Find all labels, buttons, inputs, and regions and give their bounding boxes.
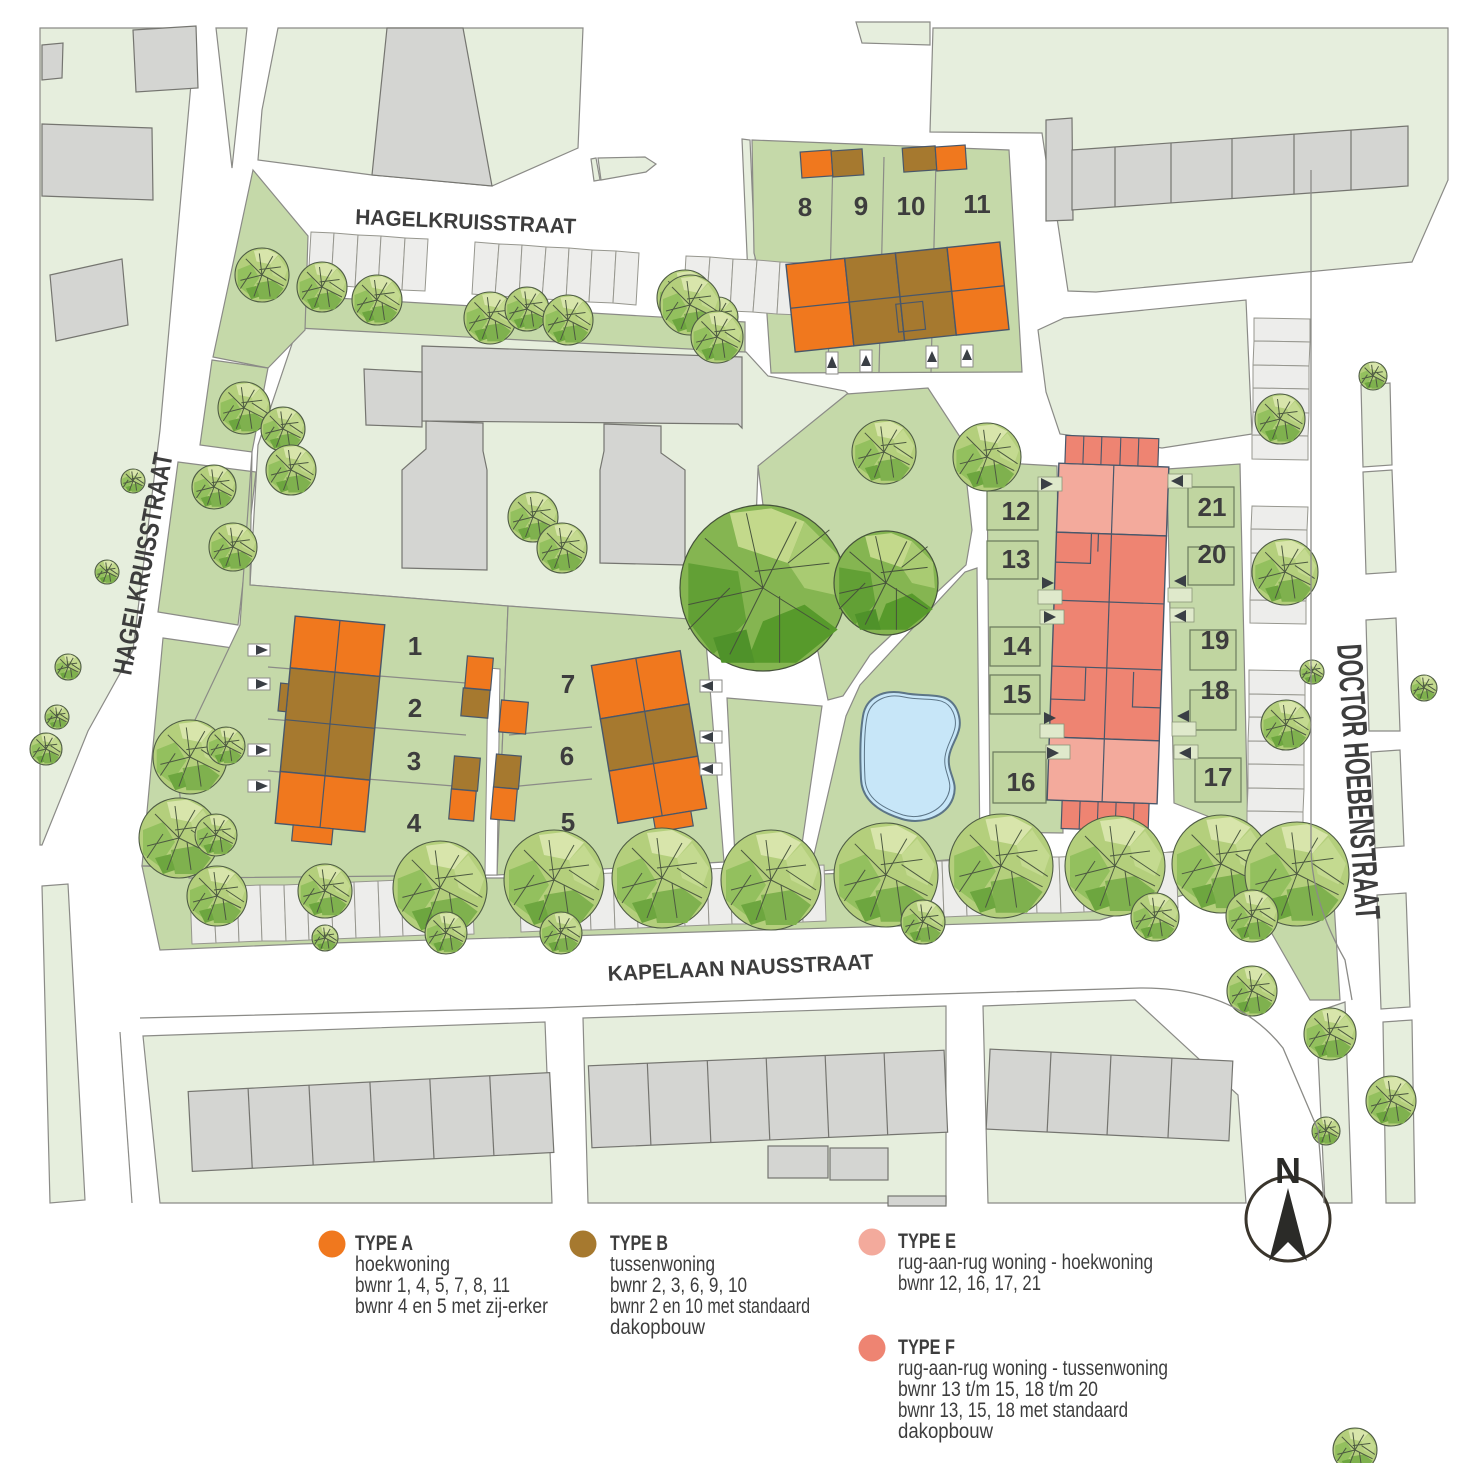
svg-text:4: 4 [407,808,422,838]
svg-text:TYPE E: TYPE E [898,1230,956,1253]
svg-text:5: 5 [561,807,575,837]
svg-text:21: 21 [1198,492,1227,522]
svg-text:14: 14 [1003,631,1032,661]
svg-text:rug-aan-rug woning - hoekwonin: rug-aan-rug woning - hoekwoning [898,1251,1153,1274]
svg-text:13: 13 [1002,544,1031,574]
svg-text:17: 17 [1204,762,1233,792]
svg-text:bwnr 13 t/m 15, 18 t/m 20: bwnr 13 t/m 15, 18 t/m 20 [898,1378,1098,1401]
svg-text:10: 10 [897,191,926,221]
svg-text:TYPE F: TYPE F [898,1336,955,1359]
svg-text:bwnr 12, 16, 17, 21: bwnr 12, 16, 17, 21 [898,1272,1041,1295]
svg-text:N: N [1275,1150,1301,1191]
svg-text:2: 2 [408,693,422,723]
svg-text:16: 16 [1007,767,1036,797]
svg-text:bwnr 2 en 10 met standaard: bwnr 2 en 10 met standaard [610,1295,810,1318]
svg-text:TYPE B: TYPE B [610,1232,668,1255]
svg-text:bwnr 1, 4, 5, 7, 8, 11: bwnr 1, 4, 5, 7, 8, 11 [355,1274,510,1297]
svg-text:hoekwoning: hoekwoning [355,1253,450,1276]
svg-text:bwnr 13, 15, 18 met standaard: bwnr 13, 15, 18 met standaard [898,1399,1128,1422]
svg-text:rug-aan-rug woning - tussenwon: rug-aan-rug woning - tussenwoning [898,1357,1168,1380]
svg-text:dakopbouw: dakopbouw [610,1316,706,1339]
svg-text:6: 6 [560,741,574,771]
svg-text:8: 8 [798,192,812,222]
svg-text:20: 20 [1198,539,1227,569]
svg-text:3: 3 [407,746,421,776]
svg-text:7: 7 [561,669,575,699]
svg-text:bwnr 2, 3, 6, 9, 10: bwnr 2, 3, 6, 9, 10 [610,1274,747,1297]
svg-text:15: 15 [1003,679,1032,709]
svg-text:19: 19 [1201,625,1230,655]
svg-text:TYPE A: TYPE A [355,1232,413,1255]
svg-text:11: 11 [963,189,991,219]
svg-text:bwnr 4 en 5 met zij-erker: bwnr 4 en 5 met zij-erker [355,1295,548,1318]
svg-text:18: 18 [1201,675,1230,705]
svg-text:1: 1 [408,631,422,661]
svg-text:9: 9 [854,191,868,221]
svg-text:12: 12 [1002,496,1031,526]
svg-text:dakopbouw: dakopbouw [898,1420,994,1443]
svg-text:tussenwoning: tussenwoning [610,1253,715,1276]
